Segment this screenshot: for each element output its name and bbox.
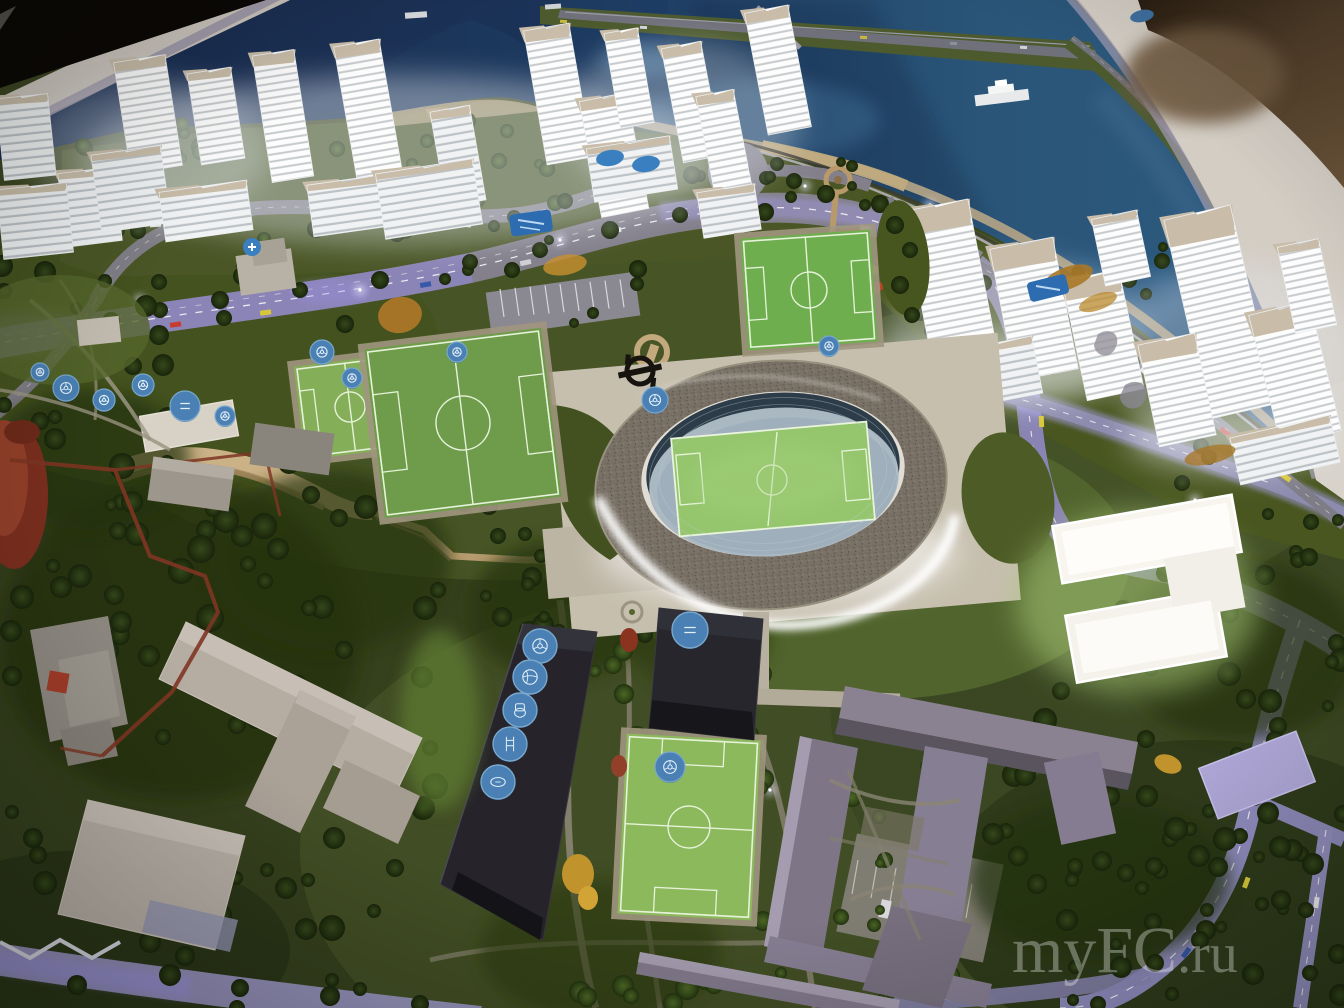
svg-text:myFC.ru: myFC.ru	[1012, 914, 1238, 987]
